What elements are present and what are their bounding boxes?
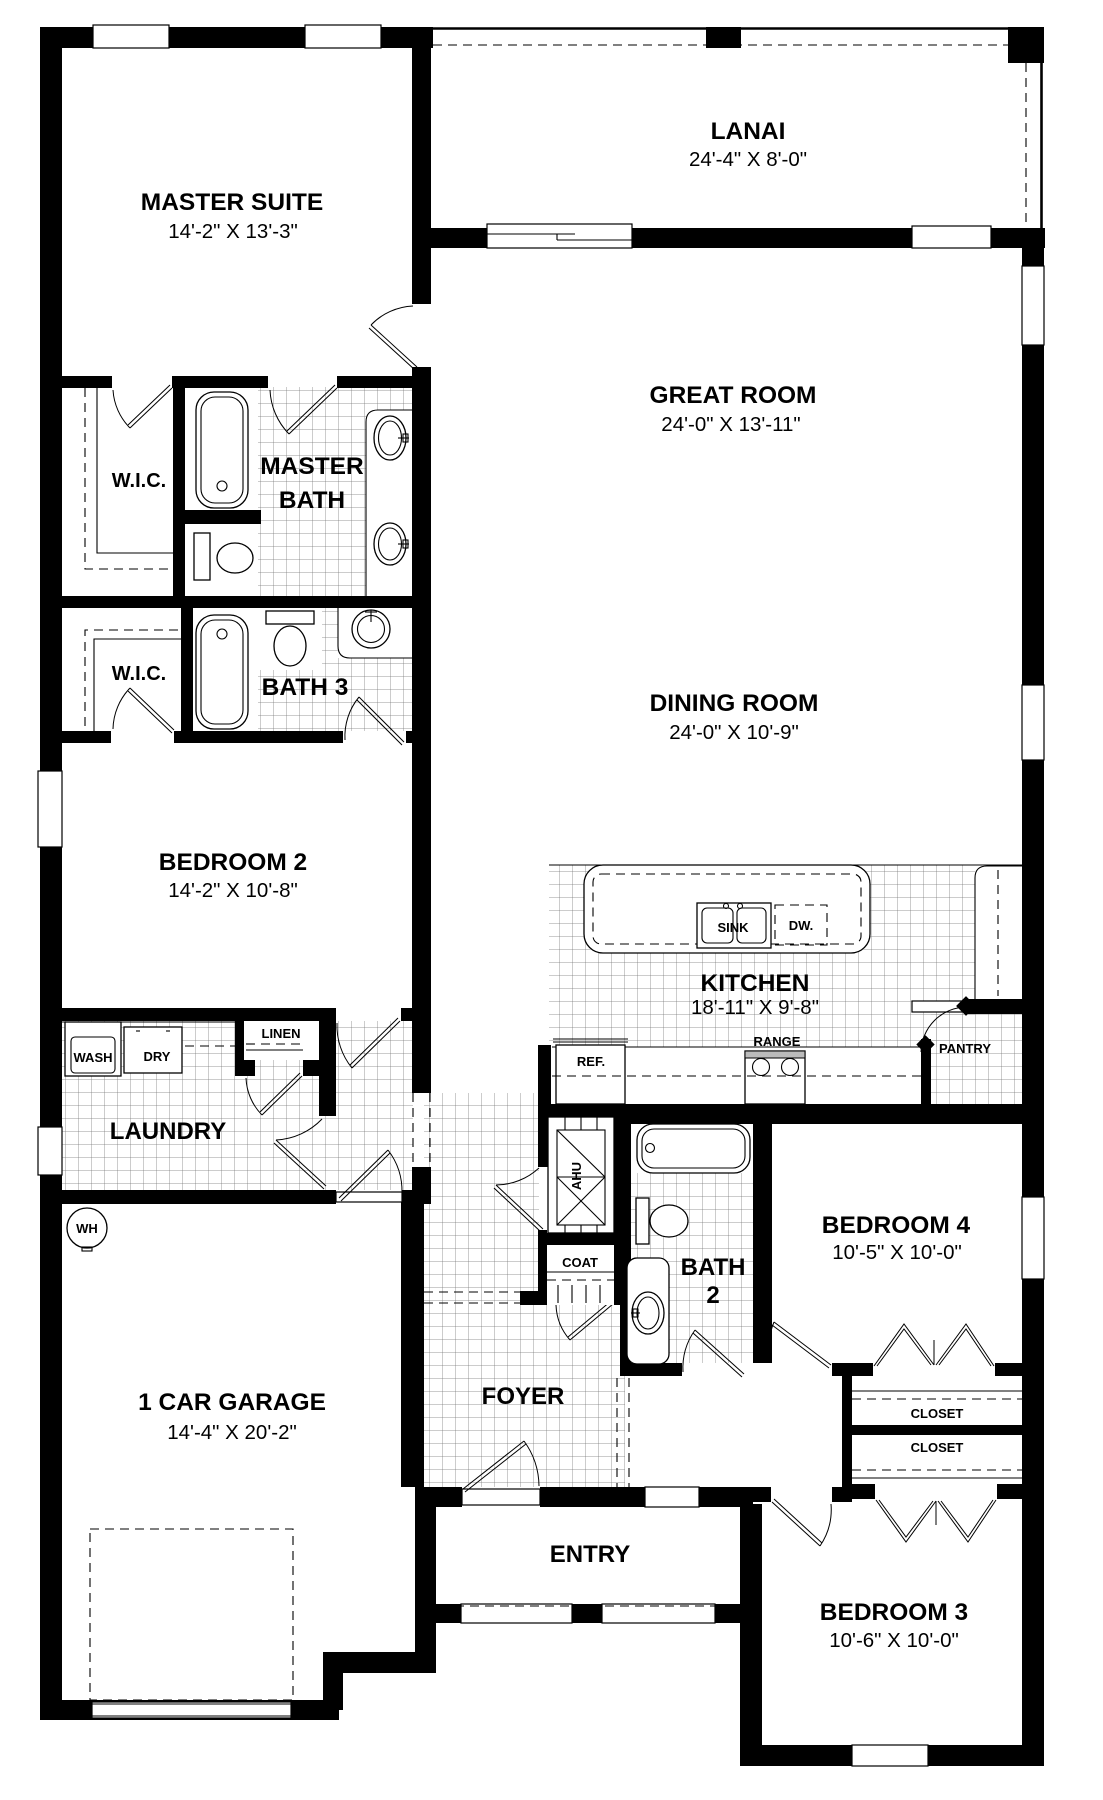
svg-text:KITCHEN: KITCHEN bbox=[701, 970, 810, 997]
svg-text:DINING ROOM: DINING ROOM bbox=[650, 690, 819, 717]
svg-text:CLOSET: CLOSET bbox=[911, 1406, 964, 1421]
svg-text:GREAT ROOM: GREAT ROOM bbox=[650, 382, 817, 409]
svg-text:BATH 3: BATH 3 bbox=[262, 674, 349, 701]
svg-text:2: 2 bbox=[706, 1282, 719, 1309]
svg-text:WASH: WASH bbox=[74, 1050, 113, 1065]
svg-text:18'-11" X 9'-8": 18'-11" X 9'-8" bbox=[691, 996, 819, 1019]
svg-text:PANTRY: PANTRY bbox=[939, 1041, 991, 1056]
svg-text:DW.: DW. bbox=[789, 918, 814, 933]
svg-text:FOYER: FOYER bbox=[482, 1383, 565, 1410]
svg-text:REF.: REF. bbox=[577, 1054, 605, 1069]
svg-text:LINEN: LINEN bbox=[262, 1026, 301, 1041]
svg-text:BATH: BATH bbox=[279, 487, 345, 514]
svg-text:14'-2" X 10'-8": 14'-2" X 10'-8" bbox=[168, 879, 298, 902]
svg-text:WH: WH bbox=[76, 1221, 98, 1236]
svg-text:DRY: DRY bbox=[144, 1049, 171, 1064]
svg-text:10'-6" X 10'-0": 10'-6" X 10'-0" bbox=[829, 1629, 959, 1652]
svg-text:BEDROOM 2: BEDROOM 2 bbox=[159, 849, 307, 876]
svg-text:AHU: AHU bbox=[569, 1162, 584, 1190]
svg-text:W.I.C.: W.I.C. bbox=[112, 470, 166, 492]
svg-text:LANAI: LANAI bbox=[711, 118, 786, 145]
svg-text:COAT: COAT bbox=[562, 1255, 598, 1270]
svg-text:14'-4" X 20'-2": 14'-4" X 20'-2" bbox=[167, 1421, 297, 1444]
svg-text:10'-5" X 10'-0": 10'-5" X 10'-0" bbox=[832, 1241, 962, 1264]
svg-text:14'-2" X 13'-3": 14'-2" X 13'-3" bbox=[168, 220, 298, 243]
svg-text:RANGE: RANGE bbox=[754, 1034, 801, 1049]
svg-text:24'-0" X 10'-9": 24'-0" X 10'-9" bbox=[669, 721, 799, 744]
svg-text:W.I.C.: W.I.C. bbox=[112, 663, 166, 685]
svg-text:SINK: SINK bbox=[717, 920, 749, 935]
svg-text:ENTRY: ENTRY bbox=[550, 1541, 630, 1568]
svg-text:BEDROOM 4: BEDROOM 4 bbox=[822, 1212, 971, 1239]
svg-text:BEDROOM 3: BEDROOM 3 bbox=[820, 1599, 968, 1626]
svg-text:MASTER: MASTER bbox=[260, 453, 364, 480]
svg-text:MASTER SUITE: MASTER SUITE bbox=[141, 189, 323, 216]
svg-text:24'-0" X 13'-11": 24'-0" X 13'-11" bbox=[661, 413, 800, 436]
svg-text:24'-4" X 8'-0": 24'-4" X 8'-0" bbox=[689, 148, 807, 171]
svg-text:1 CAR GARAGE: 1 CAR GARAGE bbox=[138, 1389, 326, 1416]
svg-text:BATH: BATH bbox=[681, 1254, 746, 1281]
svg-text:CLOSET: CLOSET bbox=[911, 1440, 964, 1455]
svg-text:LAUNDRY: LAUNDRY bbox=[110, 1118, 226, 1145]
